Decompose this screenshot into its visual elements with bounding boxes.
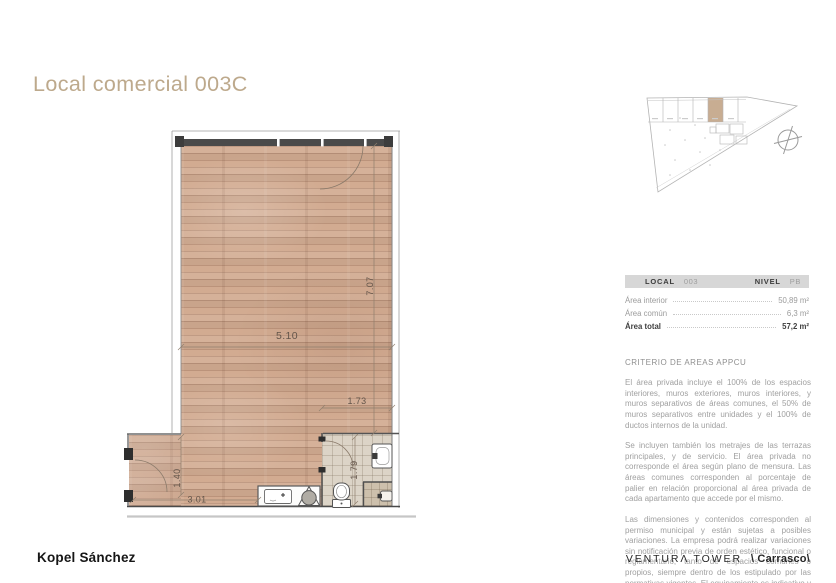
local-value: 003: [684, 277, 698, 286]
dim-entry-width: 3.01: [187, 495, 206, 505]
criteria-paragraph: El área privada incluye el 100% de los e…: [625, 378, 811, 431]
area-row-interior: Área interior 50,89 m²: [625, 293, 809, 305]
area-row-total: Área total 57,2 m²: [625, 319, 809, 331]
column-dots: [664, 117, 721, 176]
brochure-page: Local comercial 003C: [0, 0, 836, 583]
criteria-section: CRITERIO DE AREAS APPCU El área privada …: [625, 358, 811, 583]
criteria-paragraph: Las dimensiones y contenidos corresponde…: [625, 515, 811, 583]
area-table: LOCAL 003 NIVEL PB Área interior 50,89 m…: [625, 275, 809, 331]
dotted-leader: [673, 314, 781, 315]
project-location: \ Carrasco\: [751, 553, 810, 565]
plan-linework: [118, 123, 438, 528]
kitchen-sink: [265, 490, 292, 504]
project-name: VENTURΛ TOWER: [626, 553, 742, 565]
project-logo: VENTURΛ TOWER \ Carrasco\: [626, 553, 810, 565]
dimension-lines: [130, 143, 395, 507]
glazing-wall: [177, 139, 393, 146]
dim-room-depth: 7.07: [365, 276, 375, 295]
kitchenette-counter: [258, 486, 320, 506]
page-title: Local comercial 003C: [33, 72, 248, 97]
area-row-comun: Área común 6,3 m²: [625, 306, 809, 318]
washbasin: [372, 444, 392, 468]
dim-bath-depth: 1.79: [349, 460, 359, 479]
architect-logo: Kopel Sánchez: [37, 550, 136, 565]
criteria-heading: CRITERIO DE AREAS APPCU: [625, 358, 811, 367]
dotted-leader: [673, 301, 772, 302]
local-label: LOCAL: [645, 277, 675, 286]
criteria-paragraph: Se incluyen también los metrajes de las …: [625, 441, 811, 505]
toilet: [333, 483, 351, 508]
dim-room-width: 5.10: [276, 330, 298, 342]
area-table-header: LOCAL 003 NIVEL PB: [625, 275, 809, 288]
key-plan: [640, 80, 805, 200]
shower-fixture: [378, 491, 393, 501]
entry-door-arc: [135, 460, 167, 492]
north-compass-icon: [774, 126, 802, 154]
dim-entry-depth: 1.40: [172, 468, 182, 487]
dotted-leader: [667, 327, 776, 328]
nivel-value: PB: [790, 277, 801, 286]
nivel-label: NIVEL: [755, 277, 781, 286]
facade-door-arc: [320, 146, 363, 189]
floor-plan: 5.10 7.07 1.73 1.40 1.79 3.01: [118, 123, 438, 528]
dim-bath-width: 1.73: [347, 396, 366, 406]
